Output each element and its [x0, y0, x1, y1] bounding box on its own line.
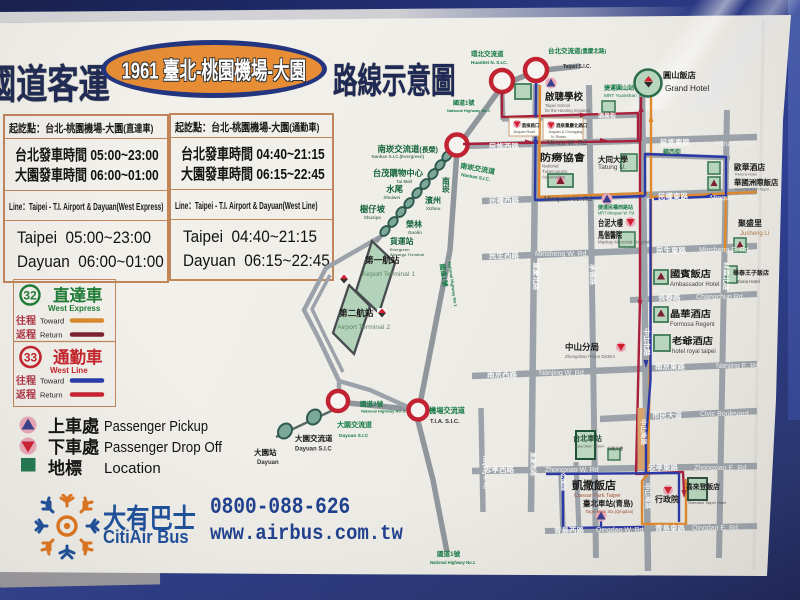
svg-text:酒泉街: 酒泉街	[598, 112, 616, 120]
svg-text:T.I.A. S.I.C.: T.I.A. S.I.C.	[430, 419, 460, 425]
svg-text:南崁交流道(長榮): 南崁交流道(長榮)	[377, 144, 438, 154]
svg-text:Changchun Rd.: Changchun Rd.	[696, 294, 745, 301]
svg-text:重慶北路: 重慶北路	[532, 262, 541, 291]
svg-text:大園站: 大園站	[254, 447, 277, 457]
svg-text:酒泉路口: 酒泉路口	[522, 122, 540, 129]
svg-text:Jiuquan & Chongqing: Jiuquan & Chongqing	[548, 130, 582, 134]
svg-text:第二航站: 第二航站	[339, 307, 374, 318]
svg-text:台北車站: 台北車站	[573, 434, 603, 443]
svg-text:Sheraton Taipei Hotel: Sheraton Taipei Hotel	[688, 500, 726, 505]
svg-text:Shuzipo: Shuzipo	[364, 215, 381, 220]
svg-text:南京東路: 南京東路	[655, 361, 685, 371]
svg-text:樹仔坡: 樹仔坡	[360, 204, 386, 214]
svg-text:National Highway No.1: National Highway No.1	[430, 560, 476, 565]
svg-text:Imperial Hotel Taipei: Imperial Hotel Taipei	[735, 188, 769, 192]
svg-text:酒泉重慶北路口: 酒泉重慶北路口	[556, 122, 588, 129]
svg-text:Zhongxiao E. Rd.: Zhongxiao E. Rd.	[694, 465, 748, 472]
svg-text:國道1號: 國道1號	[453, 99, 474, 107]
svg-text:Huanbei N. S.I.C.: Huanbei N. S.I.C.	[471, 60, 508, 65]
svg-text:台茂購物中心: 台茂購物中心	[373, 168, 424, 178]
svg-text:Grand Hotel: Grand Hotel	[665, 84, 709, 93]
svg-text:民生東路: 民生東路	[656, 245, 686, 255]
svg-text:南京西路: 南京西路	[487, 369, 517, 379]
svg-text:中山分局: 中山分局	[565, 342, 599, 352]
svg-text:Qingdao W. Rd: Qingdao W. Rd	[596, 527, 644, 534]
svg-text:Airport Terminal 2: Airport Terminal 2	[337, 324, 390, 331]
svg-text:Minsheng E. Rd.: Minsheng E. Rd.	[699, 247, 751, 254]
svg-text:Taipei Main Sta.(Qingdao): Taipei Main Sta.(Qingdao)	[585, 509, 634, 514]
svg-text:啟聰學校: 啟聰學校	[545, 91, 584, 103]
svg-text:大園交流道: 大園交流道	[295, 433, 333, 443]
svg-text:Minzu E. Rd: Minzu E. Rd	[716, 141, 754, 148]
svg-text:Nanjing W. Rd: Nanjing W. Rd	[539, 370, 584, 377]
svg-text:臺北車站(青島): 臺北車站(青島)	[583, 498, 633, 508]
svg-text:華泰王子飯店: 華泰王子飯店	[733, 269, 769, 277]
svg-text:hotel royal taipei: hotel royal taipei	[672, 349, 716, 355]
svg-text:Dayuan S.I.C: Dayuan S.I.C	[295, 447, 332, 453]
svg-text:長春路: 長春路	[658, 292, 681, 302]
svg-text:青島西路: 青島西路	[554, 525, 584, 535]
svg-text:Riviera Hotel: Riviera Hotel	[735, 173, 757, 177]
svg-text:民生西路: 民生西路	[489, 250, 519, 260]
svg-text:忠孝東路: 忠孝東路	[648, 462, 678, 472]
svg-text:防癆協會: 防癆協會	[540, 152, 586, 164]
svg-text:台開大樓: 台開大樓	[607, 445, 623, 451]
svg-text:大園交流道: 大園交流道	[337, 420, 372, 429]
svg-text:Airport Terminal 1: Airport Terminal 1	[362, 271, 415, 278]
svg-text:中山南路: 中山南路	[643, 483, 652, 510]
svg-text:圓山飯店: 圓山飯店	[663, 70, 696, 80]
svg-text:Zhongxiao W. Rd: Zhongxiao W. Rd	[545, 467, 599, 474]
svg-text:國道1號: 國道1號	[437, 549, 461, 558]
svg-text:Taipei Main Station: Taipei Main Station	[574, 445, 604, 449]
svg-text:Yanping N. Rd: Yanping N. Rd	[481, 455, 488, 489]
svg-text:Formosa Regent: Formosa Regent	[670, 322, 715, 328]
svg-text:民族東路: 民族東路	[660, 137, 690, 147]
svg-text:Minzu W. Rd.: Minzu W. Rd.	[547, 140, 589, 147]
svg-text:重慶南路: 重慶南路	[529, 452, 537, 477]
svg-text:青島東路: 青島東路	[655, 523, 685, 533]
svg-text:馬偕醫院: 馬偕醫院	[598, 230, 622, 240]
svg-text:林森北路: 林森北路	[721, 262, 731, 291]
svg-text:Mackay Memorial Hospital: Mackay Memorial Hospital	[598, 240, 650, 245]
svg-text:Minquan W. Rd: Minquan W. Rd	[544, 196, 592, 203]
svg-text:National Highway No. 2: National Highway No. 2	[361, 409, 406, 414]
svg-text:Minsheng W. Rd.: Minsheng W. Rd.	[535, 251, 588, 258]
svg-text:Gloria Hotel: Gloria Hotel	[736, 279, 760, 284]
svg-text:水尾: 水尾	[385, 184, 403, 194]
svg-text:市民大道: 市民大道	[652, 410, 682, 420]
svg-text:公園路: 公園路	[559, 473, 567, 492]
svg-text:Dayuan S.I.C: Dayuan S.I.C	[339, 433, 369, 439]
svg-text:崁: 崁	[442, 184, 450, 194]
svg-text:Jusheng Li: Jusheng Li	[740, 231, 769, 237]
svg-text:National: National	[542, 164, 559, 169]
svg-text:Qingdao E. Rd.: Qingdao E. Rd.	[692, 525, 740, 532]
svg-text:MRT Yuanshan: MRT Yuanshan	[604, 93, 637, 99]
svg-text:承德路: 承德路	[588, 264, 597, 286]
svg-text:Shuiwei: Shuiwei	[383, 195, 400, 200]
svg-text:台泥大樓: 台泥大樓	[598, 218, 623, 228]
svg-text:晶華酒店: 晶華酒店	[670, 308, 711, 319]
svg-text:民權西路: 民權西路	[489, 195, 519, 205]
svg-text:Tuberculosis: Tuberculosis	[542, 169, 568, 174]
svg-text:歐華酒店: 歐華酒店	[734, 162, 765, 172]
svg-text:台北交流道(重慶北路): 台北交流道(重慶北路)	[548, 46, 606, 55]
svg-text:民權東路: 民權東路	[658, 191, 688, 201]
svg-text:國道2號: 國道2號	[360, 399, 384, 408]
svg-text:行政院: 行政院	[654, 494, 679, 504]
svg-text:捷運圓山站: 捷運圓山站	[604, 84, 634, 92]
svg-text:民族西路: 民族西路	[489, 141, 519, 151]
svg-text:MRT Minquan W. Rd: MRT Minquan W. Rd	[598, 211, 634, 216]
svg-text:大同大學: 大同大學	[598, 154, 628, 164]
svg-text:Tatung U.: Tatung U.	[598, 164, 626, 171]
svg-text:Taipei S.I.C.: Taipei S.I.C.	[563, 64, 592, 70]
svg-text:貨運站: 貨運站	[390, 236, 414, 246]
svg-text:Xizhou: Xizhou	[426, 206, 441, 211]
svg-text:喜來登飯店: 喜來登飯店	[686, 482, 720, 491]
svg-text:華國洲際飯店: 華國洲際飯店	[734, 178, 779, 187]
svg-text:國賓飯店: 國賓飯店	[670, 268, 711, 279]
svg-text:第一航站: 第一航站	[365, 254, 400, 265]
svg-text:錦西街: 錦西街	[663, 148, 681, 156]
svg-text:National Highway No.1: National Highway No.1	[447, 108, 491, 113]
svg-text:老爺酒店: 老爺酒店	[671, 335, 713, 346]
svg-text:環北交流道: 環北交流道	[471, 49, 504, 58]
svg-text:Minquan E. Rd: Minquan E. Rd	[710, 195, 756, 202]
svg-text:凱撒飯店: 凱撒飯店	[572, 478, 616, 492]
svg-text:濱州: 濱州	[425, 195, 441, 205]
svg-text:N. Roads: N. Roads	[551, 135, 566, 139]
svg-text:Zhongshan Police District: Zhongshan Police District	[565, 354, 616, 359]
svg-text:Nanjing E. Rd: Nanjing E. Rd	[716, 363, 759, 370]
svg-text:Jiuquan Road: Jiuquan Road	[513, 130, 535, 134]
svg-text:Association: Association	[542, 175, 566, 180]
svg-text:for the Hearing Impaired: for the Hearing Impaired	[545, 108, 591, 113]
svg-text:機場交流道: 機場交流道	[429, 406, 466, 415]
svg-text:Civic Boulevard: Civic Boulevard	[700, 411, 749, 418]
svg-text:聚盛里: 聚盛里	[737, 218, 762, 228]
svg-text:Dayuan: Dayuan	[257, 460, 279, 466]
svg-text:榮林: 榮林	[406, 219, 422, 229]
svg-text:Ambassador Hotel: Ambassador Hotel	[670, 282, 719, 288]
svg-text:Guolin: Guolin	[408, 230, 422, 235]
svg-text:Nankan S.I.C.(Evergreen): Nankan S.I.C.(Evergreen)	[372, 154, 425, 159]
svg-text:忠孝西路: 忠孝西路	[484, 464, 514, 474]
svg-text:中山南路: 中山南路	[639, 419, 648, 446]
